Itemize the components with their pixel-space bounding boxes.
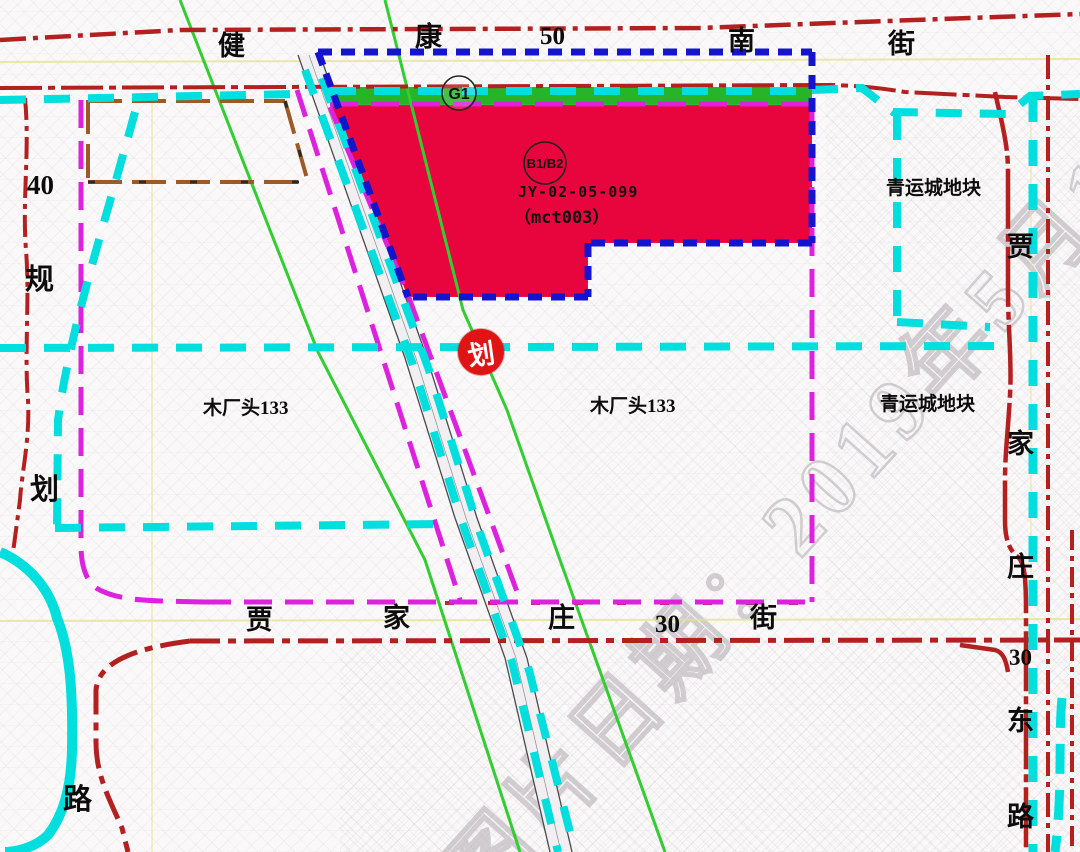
red-parcel — [330, 105, 812, 297]
cyan-left-diagonal — [57, 112, 135, 528]
east-street-char-2: 家 — [1007, 431, 1034, 458]
cyan-southeast-curve — [1055, 698, 1062, 852]
cyan-qingyuncheng-south — [897, 322, 990, 327]
middle-road-south-edge — [190, 640, 1080, 641]
east-street-char-4: 东 — [1007, 708, 1034, 735]
east-road-west-edge — [995, 92, 1026, 852]
east-street-char-1: 贾 — [1007, 234, 1034, 261]
east-street-char-3: 庄 — [1007, 554, 1034, 581]
area-label-muchangtou-west: 木厂头133 — [203, 399, 289, 418]
north-street-char-2: 康 — [415, 24, 442, 51]
east-road-connector — [960, 645, 1008, 672]
west-street-char-1: 规 — [25, 266, 54, 295]
area-label-qingyuncheng-north: 青运城地块 — [886, 179, 981, 198]
middle-street-char-3: 庄 — [548, 605, 575, 632]
plot-alias: （mct003） — [514, 203, 609, 228]
middle-street-char-2: 家 — [383, 605, 410, 632]
cyan-river — [0, 552, 72, 852]
southwest-road-curve — [96, 641, 190, 852]
zone-label: B1/B2 — [527, 156, 564, 171]
west-road-centerline — [12, 98, 28, 560]
east-street-char-5: 路 — [1007, 804, 1034, 831]
north-street-char-4: 街 — [888, 31, 915, 58]
cyan-mid-horizontal — [0, 346, 1008, 348]
east-street-width: 30 — [1009, 646, 1032, 669]
middle-street-char-4: 街 — [750, 605, 777, 632]
north-street-char-3: 南 — [728, 28, 755, 55]
middle-street-char-1: 贾 — [246, 607, 273, 634]
north-street-char-1: 健 — [218, 33, 245, 60]
area-label-muchangtou-east: 木厂头133 — [590, 397, 676, 416]
marker-glyph: 划 — [465, 331, 497, 373]
middle-street-width: 30 — [655, 612, 680, 637]
north-street-width: 50 — [540, 24, 565, 49]
cyan-left-horizontal — [55, 524, 448, 528]
g1-circle: G1 — [442, 76, 476, 110]
g1-label: G1 — [448, 86, 469, 103]
west-street-width: 40 — [27, 172, 54, 199]
cyan-north-east — [812, 88, 1080, 114]
map-geometry: G1 B1/B2 — [0, 0, 1080, 852]
west-street-char-2: 划 — [30, 476, 59, 505]
planning-map: 图片日期：2019年5月19日 — [0, 0, 1080, 852]
west-street-char-3: 路 — [63, 786, 92, 815]
plot-code: JY-02-05-099 — [518, 183, 638, 201]
area-label-qingyuncheng-south: 青运城地块 — [880, 395, 975, 414]
